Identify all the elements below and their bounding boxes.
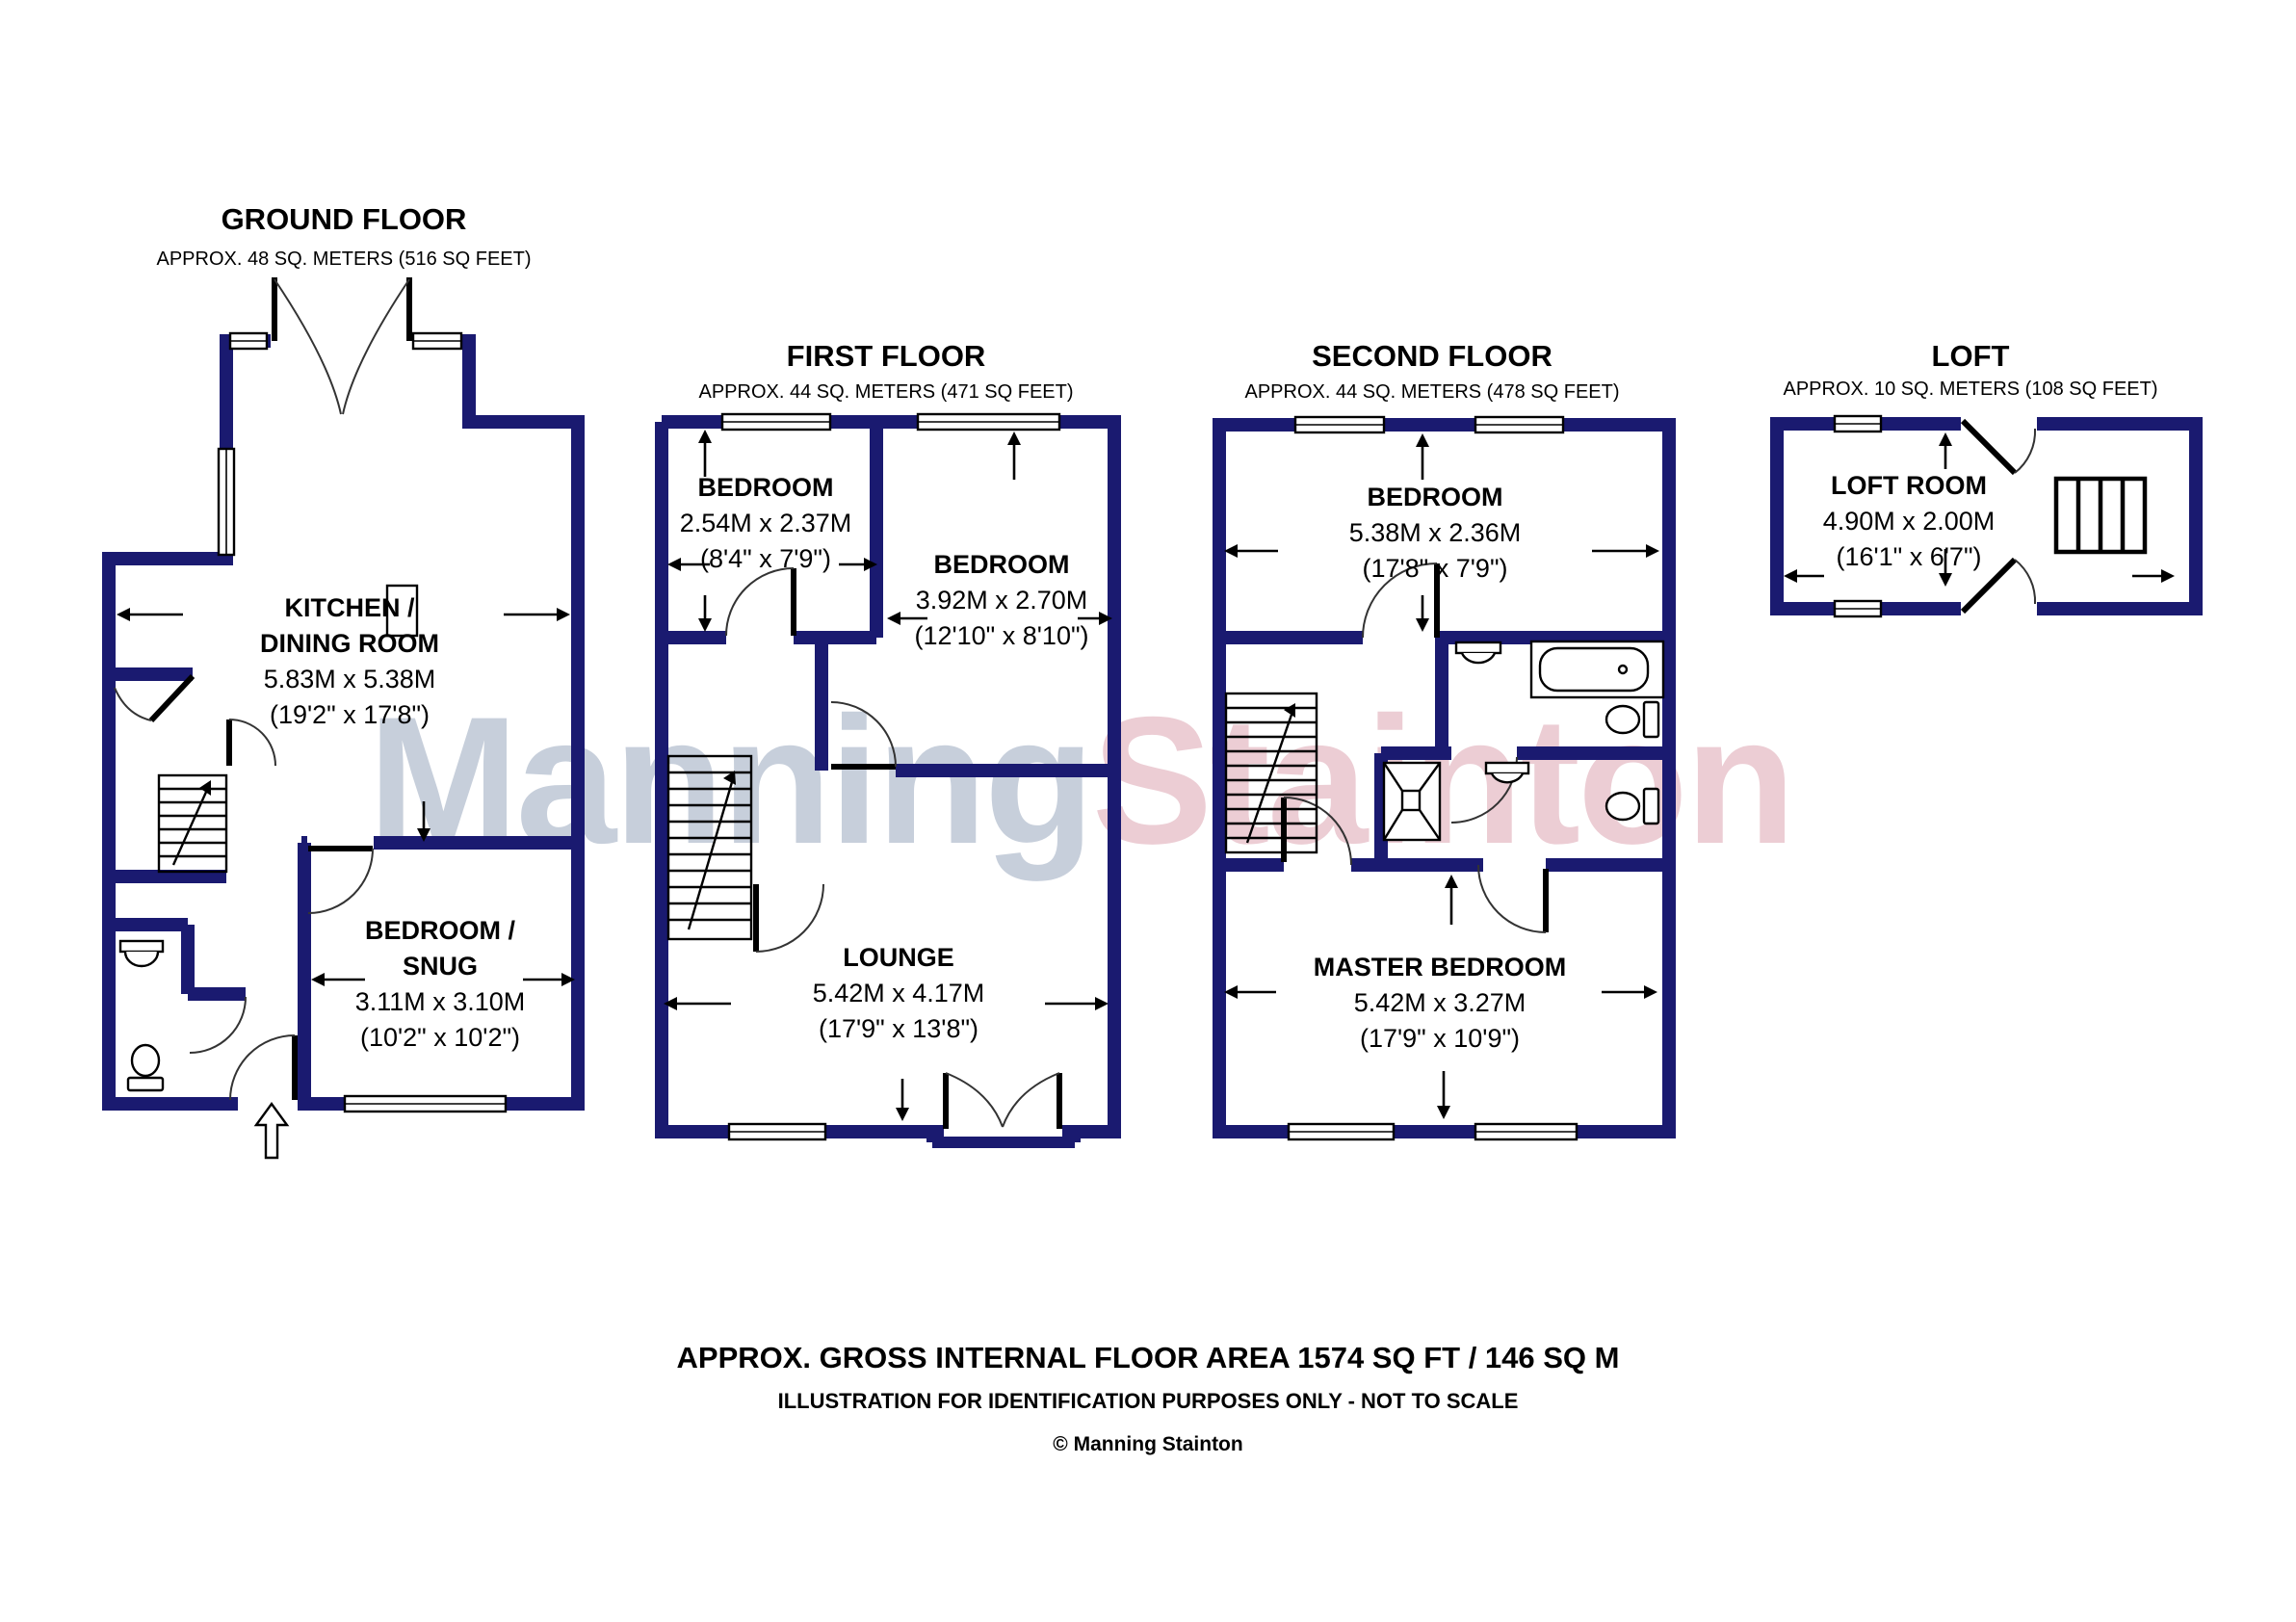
room-label-kitchen-dining: KITCHEN / DINING ROOM 5.83M x 5.38M (19'… [260,590,439,733]
bathroom-sink-fixture [1456,642,1500,663]
room-label-loft-room: LOFT ROOM 4.90M x 2.00M (16'1" x 6'7") [1823,468,1996,575]
room-label-bedroom-snug: BEDROOM / SNUG 3.11M x 3.10M (10'2" x 10… [355,913,526,1056]
first-floor-subtitle: APPROX. 44 SQ. METERS (471 SQ FEET) [699,381,1074,404]
ground-sink-fixture [120,941,163,966]
bathroom-toilet-fixture [1606,702,1658,737]
footer-gross-area: APPROX. GROSS INTERNAL FLOOR AREA 1574 S… [0,1341,2296,1375]
ground-floor-subtitle: APPROX. 48 SQ. METERS (516 SQ FEET) [157,249,532,271]
first-floor-title: FIRST FLOOR [787,339,986,374]
second-floor-subtitle: APPROX. 44 SQ. METERS (478 SQ FEET) [1245,381,1620,404]
entrance-arrow-icon [256,1104,287,1158]
bath-fixture [1531,641,1663,697]
shower-fixture [1384,763,1440,840]
first-stairs [668,756,751,939]
ensuite-toilet-fixture [1606,789,1658,824]
room-label-bedroom2-first: BEDROOM 3.92M x 2.70M (12'10" x 8'10") [914,547,1088,654]
room-label-bedroom1-first: BEDROOM 2.54M x 2.37M (8'4" x 7'9") [680,470,852,577]
ground-french-doors [274,277,409,414]
first-bedroom2-door [831,702,896,767]
second-floor-title: SECOND FLOOR [1312,339,1552,374]
first-bedroom1-door [726,568,794,636]
loft-stair-rail [2056,479,2145,552]
ground-wc-door-arc [190,997,246,1053]
ground-bedroom-door [308,849,373,913]
room-label-bedroom-second: BEDROOM 5.38M x 2.36M (17'8" x 7'9") [1349,480,1522,587]
room-label-lounge: LOUNGE 5.42M x 4.17M (17'9" x 13'8") [813,940,985,1047]
master-second-door [1478,865,1546,932]
footer-copyright: © Manning Stainton [0,1433,2296,1456]
footer-disclaimer: ILLUSTRATION FOR IDENTIFICATION PURPOSES… [0,1389,2296,1414]
ground-floor-title: GROUND FLOOR [222,202,467,237]
ground-entrance-door [230,1035,295,1100]
ground-toilet-fixture [128,1045,163,1090]
room-label-master-bedroom: MASTER BEDROOM 5.42M x 3.27M (17'9" x 10… [1314,950,1567,1057]
ground-closet-door [115,676,193,720]
first-french-doors [946,1073,1059,1129]
second-stairs [1226,693,1317,852]
floorplan-page: ManningStainton GROUND FLOOR APPROX. 48 … [0,0,2296,1622]
ground-stairs [159,775,226,872]
loft-title: LOFT [1932,339,2010,374]
ensuite-sink-fixture [1486,763,1528,782]
loft-subtitle: APPROX. 10 SQ. METERS (108 SQ FEET) [1784,379,2158,401]
